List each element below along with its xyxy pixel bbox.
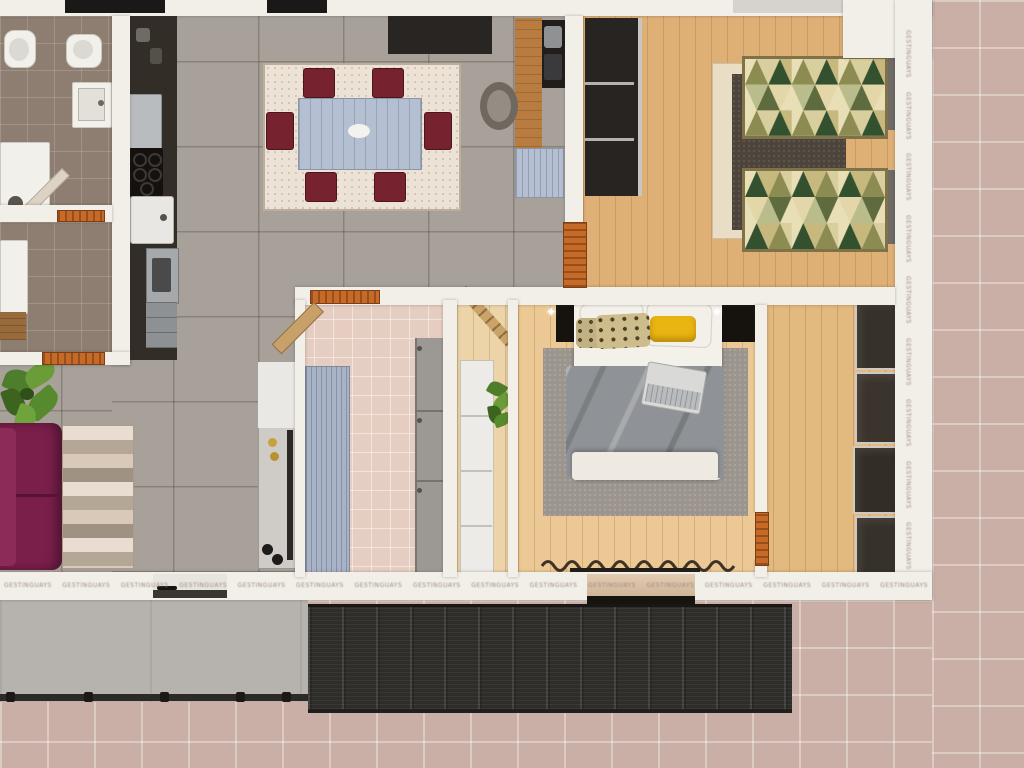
top-window bbox=[267, 0, 327, 13]
cabinet-seam bbox=[460, 415, 492, 417]
floor-plan-scene: ✦ ✦ GESTINGUAYSGESTINGUAYSGESTINGUAYSGES… bbox=[0, 0, 1024, 768]
sink-faucet bbox=[160, 214, 167, 221]
gold-bottle bbox=[270, 452, 279, 461]
fridge bbox=[128, 94, 162, 150]
railing-post bbox=[160, 692, 169, 702]
dining-chair bbox=[424, 112, 452, 150]
desk-monitor bbox=[544, 54, 562, 80]
wardrobe-shelf bbox=[585, 138, 634, 141]
railing-post bbox=[6, 692, 15, 702]
kids-bedroom-door bbox=[563, 222, 587, 288]
central-wall bbox=[295, 287, 895, 305]
master-door-track bbox=[587, 596, 695, 604]
coffee-machine bbox=[544, 26, 562, 48]
duvet-fold bbox=[572, 452, 718, 480]
storage-panel-seam bbox=[415, 480, 443, 482]
reading-lamp: ✦ bbox=[712, 306, 722, 318]
table-dish bbox=[348, 124, 370, 138]
burner bbox=[133, 153, 147, 167]
wall-sideboard bbox=[388, 16, 492, 54]
wardrobe-shelf bbox=[585, 82, 634, 85]
burner bbox=[140, 182, 154, 196]
kitchen-drawers bbox=[146, 302, 177, 348]
watermark-bottom-wall: GESTINGUAYSGESTINGUAYSGESTINGUAYSGESTING… bbox=[4, 578, 928, 592]
gold-bottle bbox=[268, 438, 277, 447]
bathroom-kitchen-wall bbox=[112, 16, 130, 365]
kitchen-sink bbox=[130, 196, 174, 244]
dumbbell bbox=[272, 554, 283, 565]
oven-window bbox=[152, 258, 171, 292]
shelf-dark-strip bbox=[287, 430, 293, 560]
sofa-back bbox=[0, 428, 16, 566]
dining-chair bbox=[266, 112, 294, 150]
single-bed-geometric bbox=[742, 168, 888, 252]
gray-storage-panels bbox=[415, 338, 445, 572]
yellow-pillow bbox=[650, 316, 696, 342]
desk bbox=[515, 18, 542, 165]
dining-chair bbox=[303, 68, 335, 98]
top-terrace-strip bbox=[733, 0, 843, 13]
panel-hinge bbox=[417, 488, 422, 493]
bidet-bowl bbox=[73, 40, 93, 59]
kitchen-small-appliance bbox=[136, 28, 150, 42]
utility-door-sill bbox=[310, 290, 380, 304]
railing-post bbox=[282, 692, 291, 702]
laundry-door bbox=[42, 352, 105, 365]
reading-lamp: ✦ bbox=[546, 306, 556, 318]
single-bed-geometric bbox=[742, 56, 888, 139]
leopard-pillow bbox=[595, 313, 651, 350]
burner bbox=[148, 153, 162, 167]
patio-railing bbox=[0, 694, 308, 701]
dumbbell bbox=[262, 544, 273, 555]
laundry-wood-shelf bbox=[0, 312, 26, 340]
cabinet-seam bbox=[460, 525, 492, 527]
watermark-right-wall: GESTINGUAYSGESTINGUAYSGESTINGUAYSGESTING… bbox=[901, 30, 915, 570]
master-closet-wall bbox=[755, 305, 767, 512]
storage-panel-seam bbox=[415, 410, 443, 412]
kids-open-wardrobe bbox=[585, 18, 642, 196]
top-window bbox=[65, 0, 165, 13]
toilet-bowl bbox=[9, 38, 29, 61]
shelving-unit-top bbox=[258, 362, 296, 428]
slatted-pergola bbox=[308, 604, 792, 713]
blue-cabinet bbox=[515, 148, 564, 198]
striped-rug bbox=[62, 425, 134, 569]
railing-post bbox=[236, 692, 245, 702]
burner bbox=[148, 168, 162, 182]
kitchen-small-appliance bbox=[150, 48, 162, 64]
corridor-right-wall bbox=[508, 300, 518, 577]
dining-chair bbox=[305, 172, 337, 202]
living-kids-wall bbox=[565, 16, 583, 222]
burner bbox=[133, 168, 147, 182]
terrace-tiles-right bbox=[932, 0, 1024, 768]
washing-machine bbox=[0, 240, 28, 314]
concrete-patio bbox=[0, 600, 308, 702]
panel-hinge bbox=[417, 346, 422, 351]
railing-post bbox=[84, 692, 93, 702]
closet-door bbox=[755, 512, 769, 566]
utility-left-wall bbox=[295, 300, 305, 577]
dining-chair bbox=[374, 172, 406, 202]
cabinet-seam bbox=[460, 470, 492, 472]
bathroom-door-sill bbox=[57, 210, 105, 222]
blue-slat-wardrobe bbox=[305, 366, 350, 579]
desk-chair-seat bbox=[487, 90, 511, 122]
washbasin-faucet bbox=[98, 100, 104, 106]
utility-right-wall bbox=[443, 300, 457, 577]
panel-hinge bbox=[417, 418, 422, 423]
dining-chair bbox=[372, 68, 404, 98]
